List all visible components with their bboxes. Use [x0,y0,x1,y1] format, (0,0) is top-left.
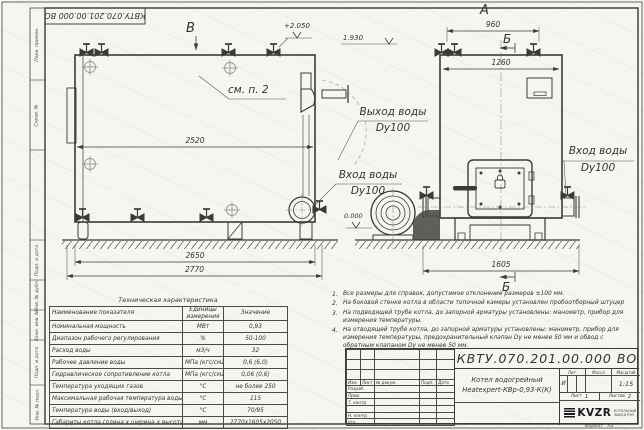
company-logo: KVZR КОТЕЛЬНЫЙ ЗАВОД РЭП [560,401,640,425]
product-name-line2: Heatexpert-КВр-0,93-К(К) [462,386,552,396]
sign-row-label: Разраб. [347,386,375,393]
note-item: 2.На боковой стенке котла в области топо… [332,300,634,308]
format-label: Формат А3 [560,424,638,429]
title-block-doc-number: КВТУ.070.201.00.000 ВО [454,349,639,369]
top-stamp-doc-number: КВТУ.070.201.00.000 ВО [45,8,145,24]
margin-cell: Перв. примен. [30,8,45,80]
dim-front-base: 1605 [423,261,579,269]
lit-mass-scale-values: И 1:15 [560,376,640,393]
dim-side-total: 2770 [67,266,322,274]
side-view [62,44,366,249]
margin-cell: Инв. № подл. [30,385,45,424]
inlet-front-label: Вход воды [561,146,635,157]
inlet-side-label: Вход воды [334,170,402,181]
title-block-right: Лит. Масса Масштаб И 1:15 Лист 1 Листов … [559,369,639,425]
elevation-outlet: 1.930 [343,35,363,42]
front-view [355,40,586,252]
mass-label: Масса [586,369,612,375]
lit-label: Лит. [560,369,586,375]
title-block-empty-cell [454,403,559,425]
sheet-cell: Лист 1 [560,393,600,400]
logo-subtitle: КОТЕЛЬНЫЙ ЗАВОД РЭП [614,409,636,418]
logo-mark-icon [564,408,575,418]
margin-cell: Инв. № дубл. [30,280,45,310]
scale-value: 1:15 [612,376,640,392]
sign-row-label: Н. контр. [347,412,375,419]
view-letter-v: В [186,22,195,35]
table-row: Габариты котла (длина х ширина х высота)… [50,417,288,429]
table-row: Диапазон рабочего регулирования%50-100 [50,333,288,345]
margin-cell: Подп. и дата [30,340,45,385]
sign-row-label: Пров. [347,392,375,399]
sheets-cell: Листов 2 [600,393,640,400]
product-name: Котел водогрейный Heatexpert-КВр-0,93-К(… [454,369,559,403]
tech-col-name: Наименование показателя [50,307,183,321]
note-item: 3.На подводящей трубе котла, до запорной… [332,310,634,326]
outlet-label: Выход воды [358,107,428,118]
dim-front-width: 1260 [440,59,562,67]
sign-row-label: Т. контр. [347,399,375,406]
tech-characteristics: Техническая характеристика Наименование … [49,296,287,429]
dim-front-top: 960 [447,21,539,29]
margin-cell: Взам. инв. № [30,310,45,340]
tech-col-value: Значение [224,307,288,321]
table-row: Температура уходящих газов°Сне более 250 [50,381,288,393]
lit-cells: И [560,376,586,392]
margin-cell: Подп. и дата [30,240,45,280]
sheet-count-row: Лист 1 Листов 2 [560,393,640,401]
scale-label: Масштаб [612,369,640,375]
table-row: Номинальная мощностьМВт0,93 [50,321,288,333]
dim-side-inner: 2520 [75,137,315,145]
tech-table: Наименование показателя Единицы измерени… [49,306,288,429]
elevation-zero: 0.000 [344,213,363,220]
lit-value: И [560,376,568,392]
logo-text: KVZR [577,407,611,419]
table-row: Рабочее давление водыМПа (кгс/см2)0,6 (6… [50,357,288,369]
see-note-ref: см. п. 2 [228,85,269,96]
section-letter-b-top: Б [503,33,511,45]
outlet-dn-label: Dy100 [358,123,428,134]
table-row: Температура воды (вход/выход)°С70/95 [50,405,288,417]
sign-row-label [347,406,375,413]
drawing-sheet: КВТУ.070.201.00.000 ВО Перв. примен. Спр… [0,0,644,430]
table-row: Максимальная рабочая температура воды°С1… [50,393,288,405]
note-item: 1.Все размеры для справок, допустимое от… [332,291,634,299]
inlet-side-dn-label: Dy100 [334,186,402,197]
view-letter-a: А [480,4,489,17]
lit-mass-scale-header: Лит. Масса Масштаб [560,369,640,376]
inlet-front-dn-label: Dy100 [561,163,635,174]
table-row: Гидравлическое сопротивление котлаМПа (к… [50,369,288,381]
title-block-change-grid: Изм. Лист № докум. Подп. Дата Разраб. Пр… [346,349,455,426]
table-row: Расход водым3/ч32 [50,345,288,357]
title-block: Изм. Лист № докум. Подп. Дата Разраб. Пр… [345,348,638,424]
elevation-top: +2.050 [284,23,310,30]
tech-col-units: Единицы измерения [183,307,224,321]
notes-list: 1.Все размеры для справок, допустимое от… [332,291,634,353]
tech-table-title: Техническая характеристика [49,296,287,304]
mass-value [586,376,612,392]
margin-cell: Справ. № [30,80,45,150]
sign-row-label: Утв. [347,419,375,426]
tech-table-header: Наименование показателя Единицы измерени… [50,307,288,321]
dim-side-frame: 2650 [75,252,315,260]
product-name-line1: Котел водогрейный [471,376,542,386]
